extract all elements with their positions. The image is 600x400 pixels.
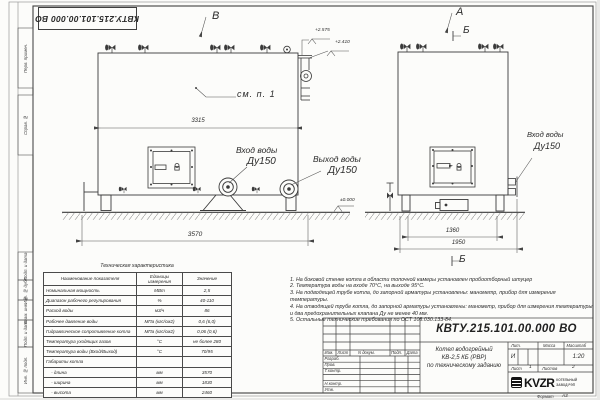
table-row: Температура уходящих газов°Сне более 280 — [44, 336, 232, 346]
tb-item-name-line1: Котел водогрейный — [421, 346, 507, 354]
margin-field-podp-data-2: Подп. и дата — [19, 320, 32, 347]
elevation-mark-2575: +2.575 — [315, 29, 330, 34]
tb-col-data: Дата — [407, 351, 418, 355]
dimension-1360: 1360 — [408, 228, 497, 234]
front-outlet-dn: Ду150 — [328, 166, 357, 176]
tb-col-podp: Подп. — [391, 351, 402, 355]
elevation-mark-zero: ±0.000 — [340, 199, 355, 204]
margin-field-inv-podl: Инв. № подл. — [19, 347, 32, 393]
tb-mass-header: Масса — [543, 344, 555, 348]
tb-row-tkontr: Т.контр. — [325, 369, 342, 373]
dimension-1950: 1950 — [400, 240, 517, 246]
side-inlet-dn: Ду150 — [534, 142, 560, 151]
front-inlet-label: Вход воды — [236, 146, 277, 155]
front-outlet-label: Выход воды — [313, 155, 361, 164]
tb-row-razrab: Разраб. — [325, 357, 340, 361]
view-label-b-top: Б — [463, 26, 470, 36]
tb-sheets-value: 2 — [572, 366, 575, 371]
table-row: - ширинамм1830 — [44, 377, 232, 387]
tb-row-utv: Утв. — [325, 388, 335, 392]
tb-sheets-label: Листов — [542, 367, 557, 371]
table-row: Расход водым3/ч86 — [44, 306, 232, 316]
front-inlet-dn: Ду150 — [247, 157, 276, 167]
margin-field-sprav-n: Справ. № — [19, 95, 32, 155]
kvzr-logo-icon — [511, 377, 522, 388]
table-row: Габариты котла — [44, 357, 232, 367]
view-label-v: В — [212, 11, 219, 22]
table-row: Номинальная мощностьМВт2,5 — [44, 286, 232, 296]
tb-scale-header: Масштаб — [567, 344, 587, 348]
table-row: Рабочее давление водыМПа (кгс/см2)0,6 (6… — [44, 316, 232, 326]
spec-header-value: Значение — [183, 273, 232, 286]
tb-scale-value: 1:20 — [564, 354, 593, 360]
margin-field-vzam-inv: Взам. инв. № — [19, 300, 32, 320]
tb-row-prov: Пров. — [325, 363, 336, 367]
tb-item-name-line3: по техническому заданию — [421, 362, 507, 370]
table-row: Диапазон рабочего регулирования%40-110 — [44, 296, 232, 306]
view-label-a: А — [456, 7, 463, 18]
format-label: Формат — [537, 395, 554, 399]
tb-item-name: Котел водогрейный КВ-2,5 КБ (РВР) по тех… — [421, 346, 507, 370]
tb-item-name-line2: КВ-2,5 КБ (РВР) — [421, 354, 507, 362]
tb-col-list: Лист — [338, 351, 349, 355]
format-value: А3 — [562, 394, 568, 399]
kvzr-logo: KVZR КОТЕЛЬНЫЙ ЗАВОД РЭП — [511, 374, 591, 391]
note-1: 1. На боковой стенке котла в области топ… — [290, 277, 594, 284]
dimension-3315: 3315 — [98, 118, 298, 124]
table-row: Гидравлическое сопротивление котлаМПа (к… — [44, 326, 232, 336]
spec-header-name: Наименование показателя — [44, 273, 137, 286]
note-4: 4. На отводящей трубе котла, до запорной… — [290, 304, 594, 318]
tb-lit-header: Лит. — [511, 344, 521, 348]
note-3: 3. На подводящей трубе котла, до запорно… — [290, 290, 594, 304]
top-stamp-doc-number: КВТУ.215.101.00.000 ВО — [35, 14, 139, 24]
tb-sheet-label: Лист — [511, 367, 522, 371]
dimension-3570: 3570 — [82, 232, 308, 239]
tb-sheet-value: 1 — [529, 366, 532, 371]
see-note-callout: см. п. 1 — [237, 90, 276, 99]
table-row: - высотамм2460 — [44, 387, 232, 397]
side-inlet-label: Вход воды — [527, 131, 563, 139]
tb-col-ndokum: N докум. — [358, 351, 375, 355]
tb-row-nkontr: Н.контр. — [325, 382, 343, 386]
table-row: - длинамм3570 — [44, 367, 232, 377]
kvzr-logo-text: KVZR — [524, 376, 554, 390]
margin-field-perv-primen: Перв. примен. — [19, 28, 32, 88]
elevation-mark-2410: +2.410 — [335, 41, 350, 46]
tb-col-izm: Изм. — [325, 351, 334, 355]
top-stamp-box: КВТУ.215.101.00.000 ВО — [38, 7, 137, 30]
tb-lit-value: И — [508, 354, 518, 360]
table-row: Температура воды (Вход/Выход)°С70/95 — [44, 347, 232, 357]
drawing-sheet-screenshot: { "doc": { "number": "КВТУ.215.101.00.00… — [0, 0, 600, 400]
section-label-b-bottom: Б — [459, 255, 466, 265]
spec-header-row: Наименование показателя Единицы измерени… — [44, 273, 232, 286]
spec-table-title: Техническая характеристика — [43, 264, 231, 269]
spec-table: Наименование показателя Единицы измерени… — [43, 272, 232, 398]
kvzr-logo-subtitle: КОТЕЛЬНЫЙ ЗАВОД РЭП — [556, 378, 577, 386]
technical-notes: 1. На боковой стенке котла в области топ… — [290, 277, 594, 325]
spec-header-units: Единицы измерения — [137, 273, 183, 286]
title-block-doc-number: КВТУ.215.101.00.000 ВО — [420, 323, 593, 335]
